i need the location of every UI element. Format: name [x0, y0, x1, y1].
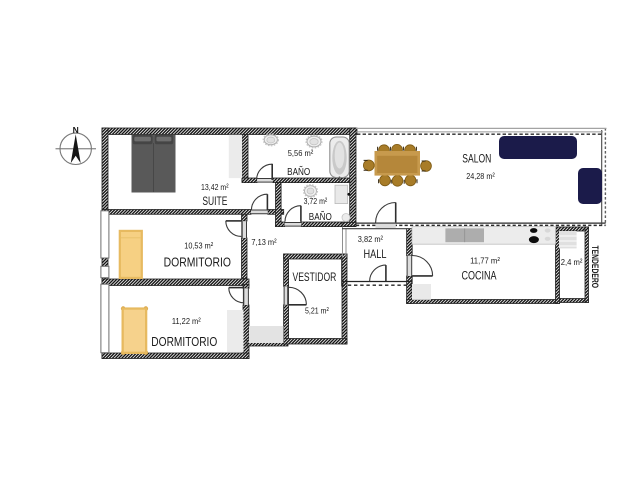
svg-text:24,28 m²: 24,28 m² — [466, 171, 495, 181]
svg-text:DORMITORIO: DORMITORIO — [151, 334, 217, 349]
svg-text:DORMITORIO: DORMITORIO — [164, 254, 231, 269]
svg-text:SUITE: SUITE — [202, 194, 227, 208]
svg-text:N: N — [73, 125, 79, 135]
svg-text:COCINA: COCINA — [462, 269, 497, 283]
svg-text:BAÑO: BAÑO — [309, 210, 332, 223]
svg-text:VESTIDOR: VESTIDOR — [293, 270, 337, 284]
svg-text:HALL: HALL — [364, 247, 387, 261]
svg-text:11,77 m²: 11,77 m² — [470, 256, 500, 266]
svg-text:11,22 m²: 11,22 m² — [172, 316, 201, 326]
svg-text:TENDEDERO: TENDEDERO — [590, 246, 600, 289]
svg-text:7,13 m²: 7,13 m² — [251, 237, 276, 247]
svg-text:SALON: SALON — [462, 152, 491, 166]
svg-text:10,53 m²: 10,53 m² — [184, 241, 213, 251]
svg-text:5,56 m²: 5,56 m² — [288, 148, 314, 158]
svg-text:BAÑO: BAÑO — [287, 165, 310, 178]
svg-text:2,4 m²: 2,4 m² — [561, 257, 583, 267]
svg-text:13,42 m²: 13,42 m² — [201, 182, 229, 192]
svg-text:3,72 m²: 3,72 m² — [304, 196, 328, 206]
svg-text:5,21 m²: 5,21 m² — [305, 306, 329, 316]
svg-text:3,82 m²: 3,82 m² — [358, 234, 383, 244]
